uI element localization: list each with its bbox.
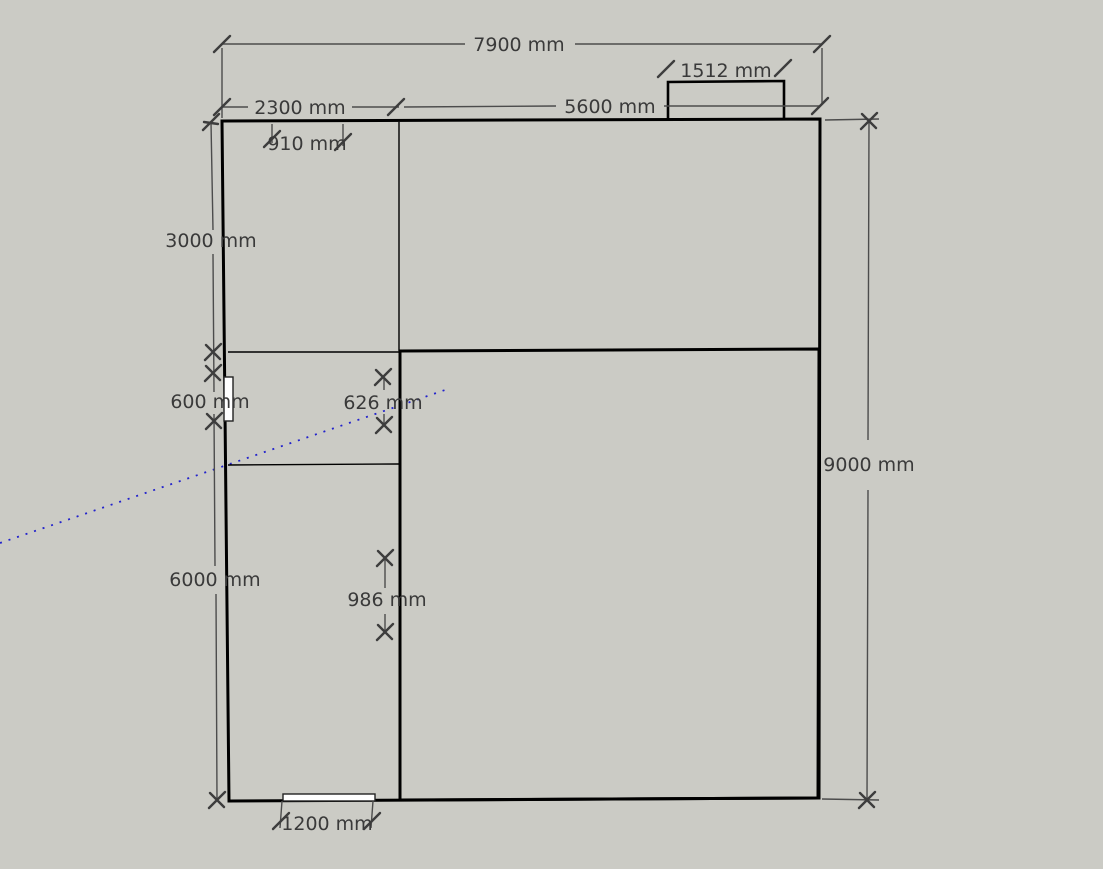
floor-plan-canvas[interactable]: 7900 mm 1512 mm 2300 mm 5600 mm 910 mm 3… [0, 0, 1103, 869]
dim-label-top-opening: 910 mm [267, 133, 346, 155]
dim-label-total-height: 9000 mm [823, 454, 914, 476]
dim-label-left-bay: 2300 mm [254, 97, 345, 119]
dim-label-626: 626 mm [343, 392, 422, 414]
dim-label-left-wing-depth: 6000 mm [169, 569, 260, 591]
dim-label-986: 986 mm [347, 589, 426, 611]
dim-label-notch-width: 1512 mm [680, 60, 771, 82]
dim-label-bottom-door: 1200 mm [281, 813, 372, 835]
dim-label-left-opening: 600 mm [170, 391, 249, 413]
bottom-door-marker[interactable] [283, 794, 375, 801]
dim-label-top-room-depth: 3000 mm [165, 230, 256, 252]
canvas-background [0, 0, 1103, 869]
dim-label-right-bay: 5600 mm [564, 96, 655, 118]
dim-label-total-width: 7900 mm [473, 34, 564, 56]
modeling-viewport[interactable]: 7900 mm 1512 mm 2300 mm 5600 mm 910 mm 3… [0, 0, 1103, 869]
